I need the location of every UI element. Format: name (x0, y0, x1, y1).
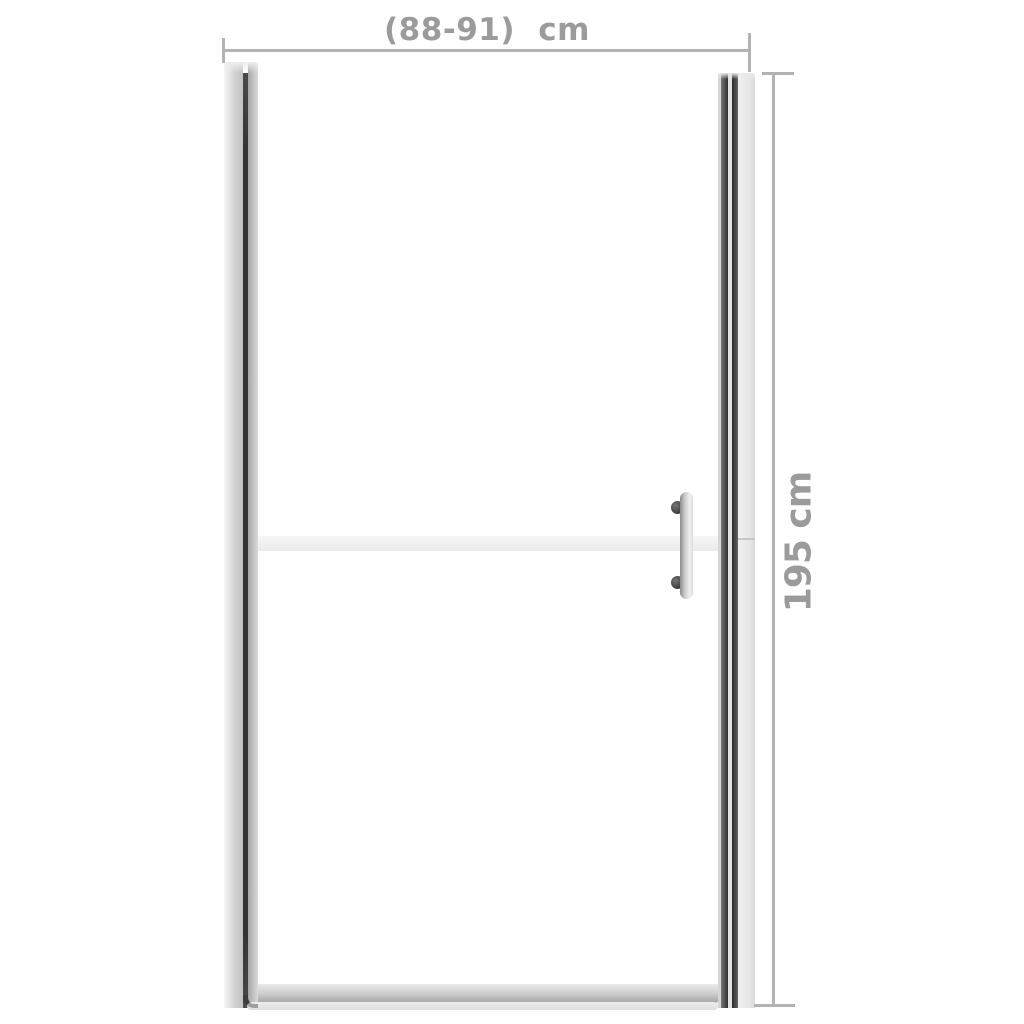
width-dimension-tick-left (222, 38, 225, 63)
width-dimension-line (224, 49, 750, 52)
height-dimension-tick-top (762, 72, 794, 75)
right-wall-profile (718, 73, 755, 1008)
left-profile-edge (248, 62, 258, 1008)
width-dimension-tick-right (748, 33, 751, 72)
height-dimension-tick-bottom (754, 1004, 795, 1007)
left-wall-profile (224, 62, 258, 1008)
product-dimension-diagram: (88-91) cm 195 cm (0, 0, 1024, 1024)
left-profile-face (224, 62, 243, 1008)
bottom-seal-strip (247, 1002, 718, 1010)
height-dimension-line (772, 73, 775, 1006)
width-dimension-label: (88-91) cm (224, 12, 750, 48)
right-profile-glass-groove (721, 73, 728, 1008)
left-profile-top-cap (224, 62, 258, 73)
height-dimension-label: 195 cm (779, 472, 820, 613)
bottom-seal-rail (258, 984, 720, 1003)
right-profile-adjustment-seam (738, 538, 755, 540)
right-profile-top-cap (718, 73, 755, 79)
right-profile-face (738, 73, 755, 1008)
frosted-glass-band (258, 536, 718, 551)
door-handle-bar (680, 492, 693, 599)
